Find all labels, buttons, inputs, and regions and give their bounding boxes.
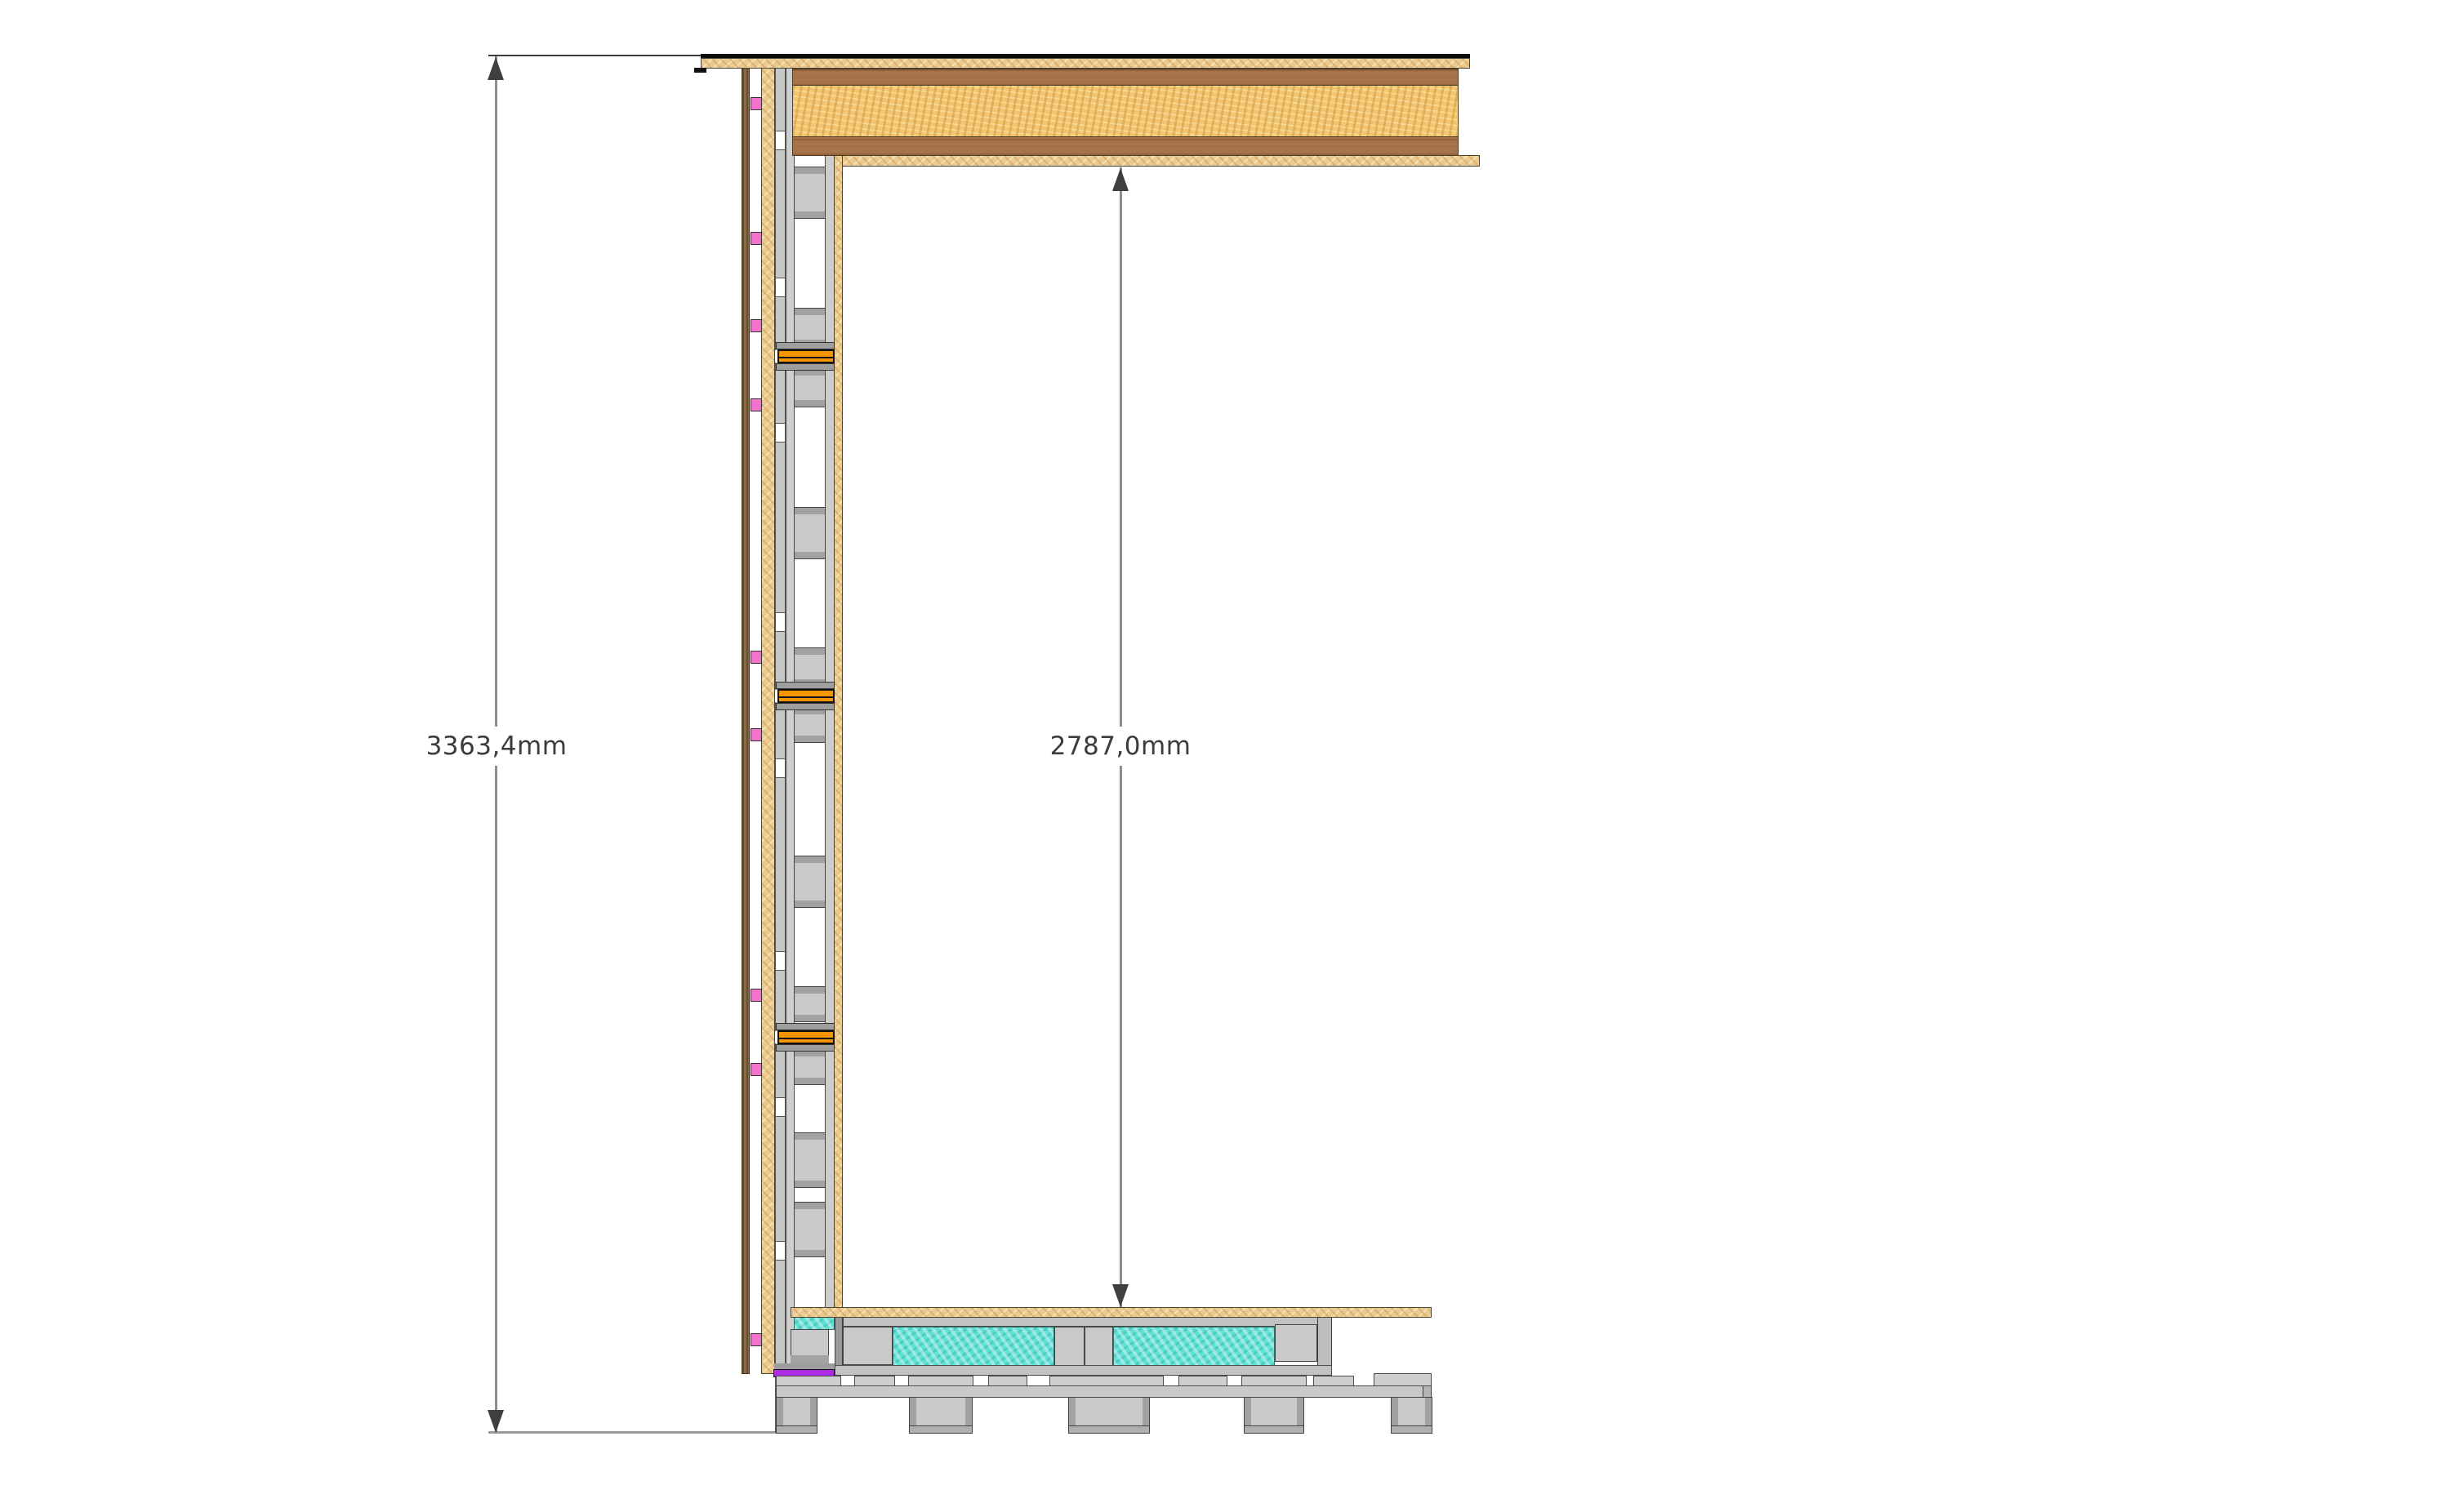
orange-service-strip (777, 1030, 835, 1044)
section-drawing-canvas: 3363,4mm 2787,0mm (0, 0, 2450, 1512)
dimension-arrow-up-icon (488, 57, 504, 80)
orange-row-notch (775, 690, 777, 702)
foundation-post-edge (965, 1398, 972, 1426)
roof-beam-top-flange (792, 69, 1459, 87)
batten-layer-gap (776, 1241, 785, 1261)
orange-row-top-rail (776, 342, 835, 349)
overall-dimension-line-lower (495, 766, 497, 1433)
floor-top-flange (843, 1317, 1331, 1327)
sill-insulation-block (794, 1317, 835, 1330)
overall-height-label: 3363,4mm (421, 732, 572, 761)
foundation-packer (854, 1376, 895, 1386)
orange-strip-divider (779, 1038, 833, 1039)
wall-blocking-cap (795, 508, 825, 514)
foundation-packer (1241, 1376, 1307, 1386)
batten-layer-gap (776, 951, 785, 971)
dimension-arrow-down-icon (488, 1410, 504, 1433)
floor-bottom-flange (835, 1365, 1332, 1376)
orange-strip-divider (779, 696, 833, 698)
foundation-post-edge (1297, 1398, 1303, 1426)
clear-dimension-line-lower (1120, 766, 1122, 1307)
foundation-post-edge (910, 1398, 916, 1426)
wall-cladding-board (742, 68, 750, 1374)
foundation-post-edge (1425, 1398, 1432, 1426)
wall-interior-sheathing (834, 155, 843, 1317)
foundation-post-edge (810, 1398, 817, 1426)
foundation-packer (1374, 1373, 1432, 1386)
wall-blocking-cap (795, 648, 825, 655)
foundation-post-edge (1069, 1398, 1076, 1426)
orange-row-bottom-rail (776, 1044, 835, 1052)
roof-beam-web (792, 85, 1459, 138)
wall-blocking-cap (795, 1078, 825, 1084)
foundation-post-foot (776, 1425, 817, 1434)
facade-batten (751, 1333, 762, 1346)
batten-layer-gap (776, 1097, 785, 1117)
foundation-post-foot (1244, 1425, 1304, 1434)
batten-layer-gap (776, 758, 785, 778)
wall-blocking-cap (795, 400, 825, 407)
ground-line (488, 1431, 784, 1434)
batten-layer-gap (776, 278, 785, 297)
orange-service-strip (777, 689, 835, 703)
facade-batten (751, 1063, 762, 1076)
foundation-post (1068, 1397, 1150, 1427)
foundation-bearer-beam (776, 1385, 1432, 1398)
foundation-post-foot (909, 1425, 973, 1434)
foundation-post-foot (1068, 1425, 1150, 1434)
ceiling-sheathing-board (842, 155, 1480, 167)
clear-dimension-line-upper (1120, 167, 1122, 727)
wall-blocking (794, 1132, 826, 1188)
wall-blocking-cap (795, 309, 825, 315)
floor-insulation-2 (1113, 1327, 1275, 1366)
roof-beam-bottom-flange (792, 136, 1459, 156)
wall-blocking-cap (795, 1181, 825, 1187)
floor-joist (843, 1327, 893, 1365)
orange-row-notch (775, 350, 777, 362)
wall-blocking (794, 1202, 826, 1257)
floor-joist (1275, 1324, 1317, 1362)
wall-blocking-cap (795, 211, 825, 218)
orange-strip-divider (779, 357, 833, 358)
orange-row-top-rail (776, 1023, 835, 1030)
foundation-post-edge (1143, 1398, 1149, 1426)
wall-blocking-cap (795, 856, 825, 863)
facade-batten (751, 232, 762, 245)
wall-batten-layer (775, 69, 786, 1433)
wall-blocking-cap (795, 987, 825, 994)
floor-insulation-1 (893, 1327, 1054, 1366)
foundation-post-edge (1392, 1398, 1398, 1426)
wall-blocking-cap (795, 736, 825, 742)
facade-batten (751, 651, 762, 664)
wall-blocking-cap (795, 901, 825, 907)
foundation-post-edge (1245, 1398, 1251, 1426)
dimension-arrow-up-icon (1112, 168, 1129, 191)
batten-layer-gap (776, 612, 785, 632)
facade-batten (751, 398, 762, 411)
clear-height-label: 2787,0mm (1045, 732, 1196, 761)
orange-row-notch (775, 1031, 777, 1043)
floor-joist (1054, 1327, 1113, 1366)
wall-blocking-cap (795, 552, 825, 558)
top-extension-line (488, 55, 702, 56)
wall-blocking-cap (795, 167, 825, 174)
wall-blocking-cap (795, 1250, 825, 1256)
foundation-post (1244, 1397, 1304, 1427)
foundation-packer (1313, 1376, 1354, 1386)
facade-batten (751, 319, 762, 332)
facade-batten (751, 728, 762, 741)
foundation-post (909, 1397, 973, 1427)
wall-blocking-cap (795, 1133, 825, 1140)
foundation-packer (776, 1376, 841, 1386)
foundation-packer (1049, 1376, 1164, 1386)
orange-row-bottom-rail (776, 703, 835, 710)
batten-layer-gap (776, 423, 785, 442)
joist-centre-line (1084, 1327, 1085, 1365)
facade-batten (751, 989, 762, 1002)
dimension-arrow-down-icon (1112, 1284, 1129, 1307)
roof-deck-board (701, 58, 1470, 69)
orange-service-strip (777, 349, 835, 363)
overall-dimension-line-upper (495, 56, 497, 727)
foundation-packer (988, 1376, 1027, 1386)
orange-row-bottom-rail (776, 363, 835, 371)
foundation-packer (908, 1376, 973, 1386)
wall-bottom-plate-cap (791, 1355, 829, 1363)
wall-blocking-cap (795, 1015, 825, 1021)
eaves-flashing (694, 68, 706, 73)
facade-batten (751, 97, 762, 110)
wall-wind-barrier-board (761, 68, 775, 1374)
floor-deck-board (791, 1307, 1432, 1318)
foundation-post-edge (777, 1398, 783, 1426)
wall-blocking-cap (795, 1203, 825, 1209)
batten-layer-gap (776, 131, 785, 150)
foundation-packer (1178, 1376, 1227, 1386)
orange-row-top-rail (776, 682, 835, 689)
foundation-post-foot (1391, 1425, 1432, 1434)
